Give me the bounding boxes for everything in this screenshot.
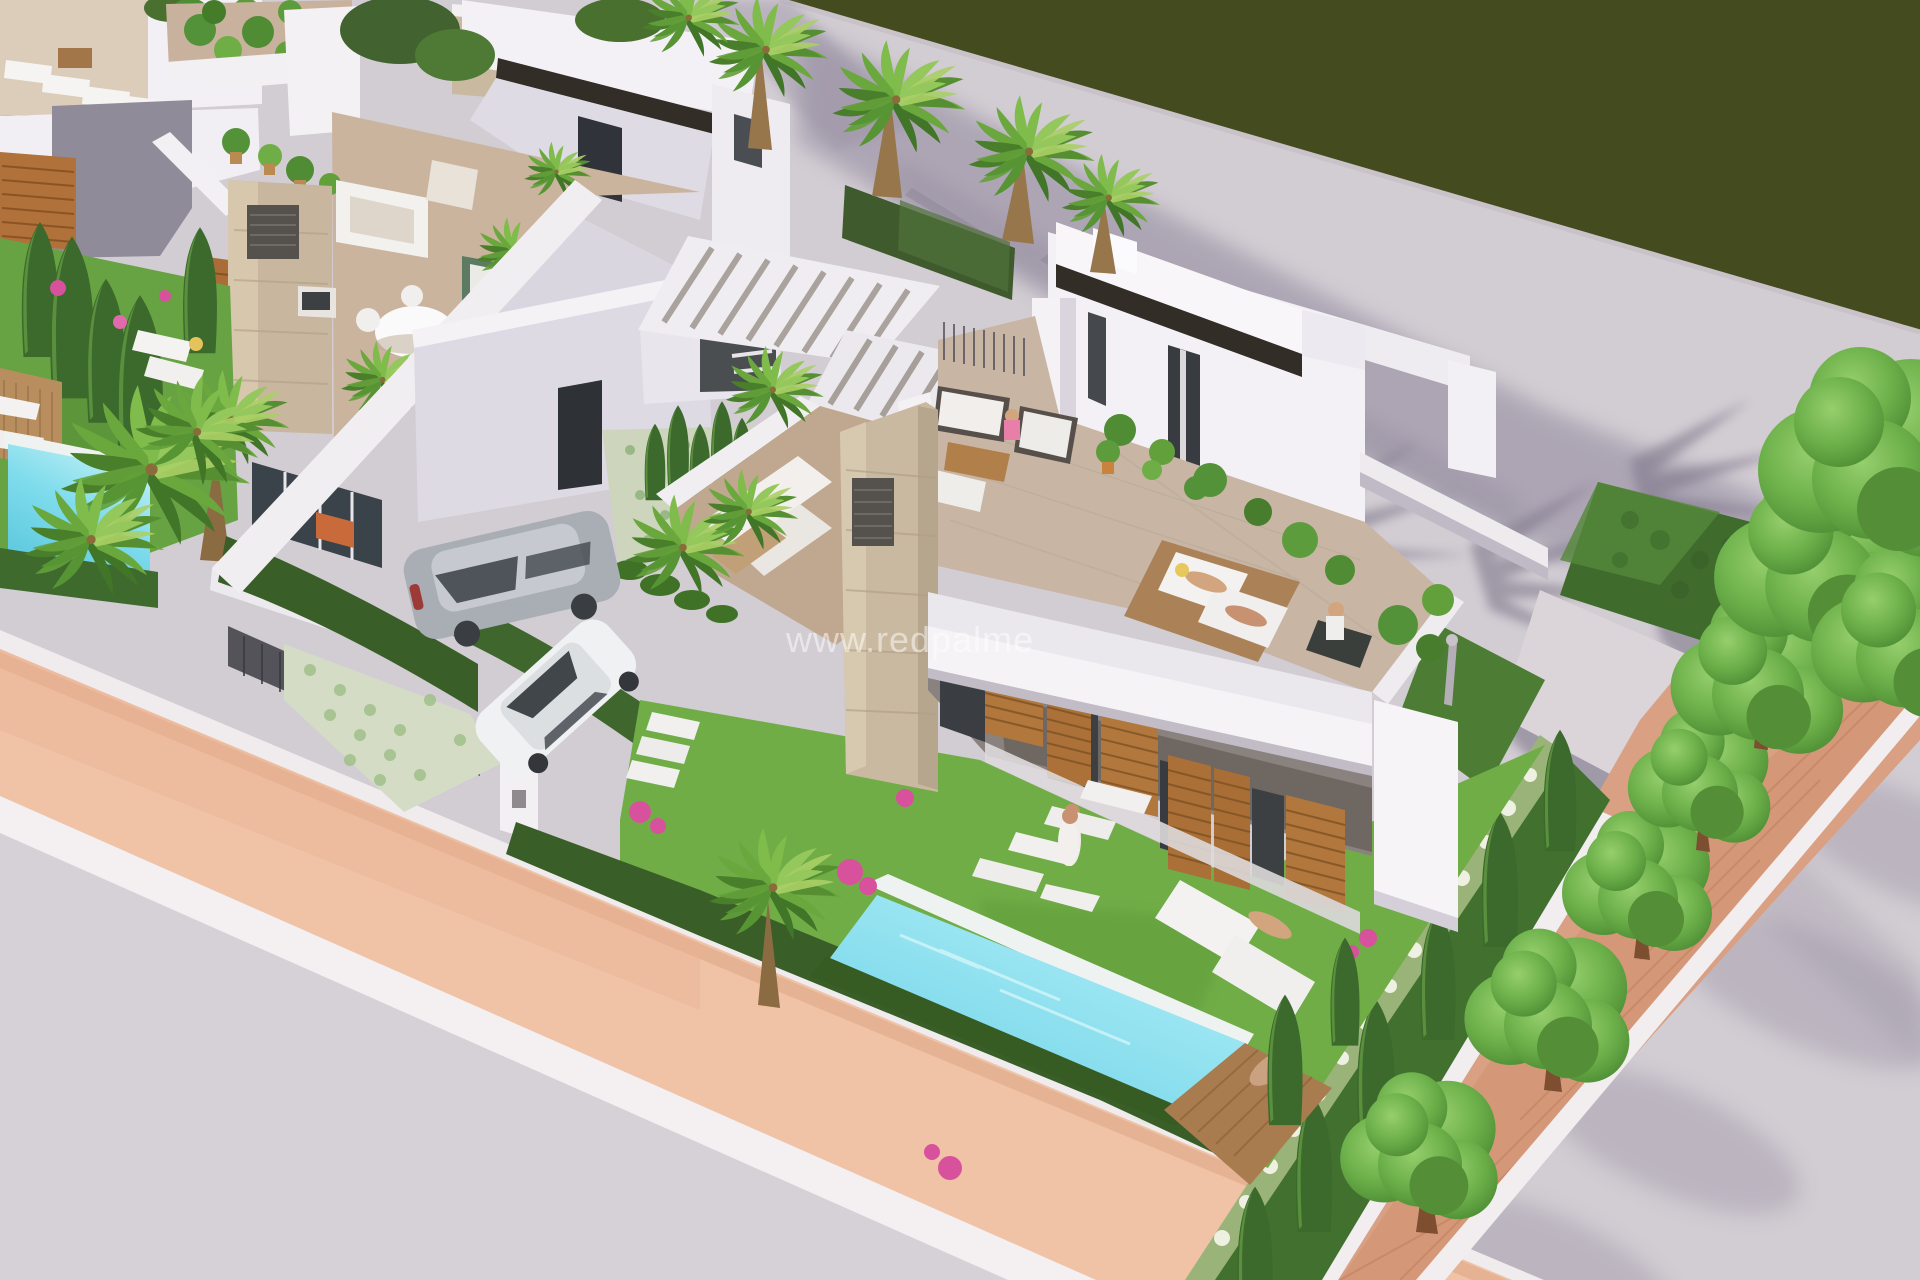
svg-text:www.redpalme: www.redpalme bbox=[785, 619, 1034, 660]
